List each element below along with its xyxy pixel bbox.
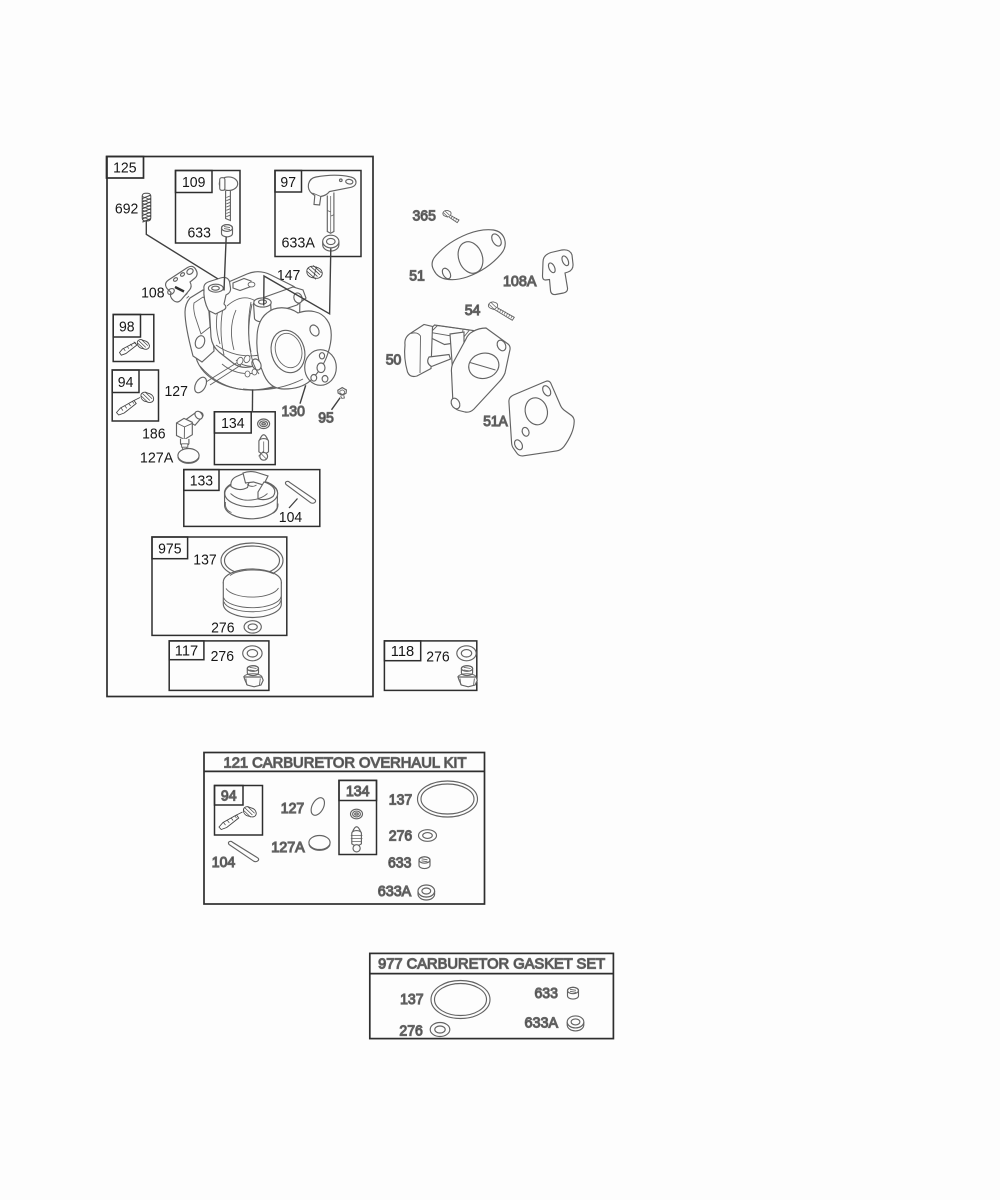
svg-text:276: 276	[426, 649, 449, 666]
svg-text:95: 95	[318, 409, 334, 426]
svg-text:633: 633	[388, 855, 411, 872]
svg-text:276: 276	[399, 1022, 422, 1039]
svg-text:977 CARBURETOR GASKET SET: 977 CARBURETOR GASKET SET	[378, 956, 605, 973]
svg-text:127: 127	[281, 800, 304, 817]
svg-text:94: 94	[221, 787, 237, 804]
svg-text:50: 50	[386, 351, 402, 368]
svg-text:118: 118	[391, 643, 414, 660]
svg-text:130: 130	[282, 403, 305, 420]
svg-text:109: 109	[182, 174, 205, 191]
svg-text:108A: 108A	[503, 273, 537, 290]
svg-text:276: 276	[211, 648, 234, 665]
svg-text:276: 276	[211, 619, 234, 636]
svg-text:54: 54	[465, 302, 481, 319]
svg-text:51: 51	[409, 268, 425, 285]
svg-text:137: 137	[193, 552, 216, 569]
svg-text:127A: 127A	[140, 450, 174, 467]
svg-text:127: 127	[165, 383, 188, 400]
svg-text:94: 94	[118, 374, 134, 391]
svg-text:98: 98	[119, 318, 135, 335]
svg-text:97: 97	[280, 174, 296, 191]
svg-text:633A: 633A	[525, 1015, 559, 1032]
svg-text:137: 137	[400, 991, 423, 1008]
svg-text:276: 276	[389, 828, 412, 845]
svg-text:127A: 127A	[271, 839, 305, 856]
svg-text:134: 134	[346, 783, 369, 800]
svg-text:104: 104	[212, 854, 235, 871]
svg-text:125: 125	[113, 160, 136, 177]
svg-text:104: 104	[279, 509, 302, 526]
svg-text:975: 975	[158, 540, 181, 557]
svg-text:186: 186	[142, 425, 165, 442]
svg-text:134: 134	[221, 415, 244, 432]
svg-text:121 CARBURETOR OVERHAUL KIT: 121 CARBURETOR OVERHAUL KIT	[224, 754, 467, 771]
svg-text:108: 108	[141, 284, 164, 301]
svg-text:137: 137	[389, 792, 412, 809]
svg-text:692: 692	[115, 200, 138, 217]
svg-text:633A: 633A	[378, 883, 412, 900]
svg-text:633A: 633A	[281, 235, 315, 252]
svg-text:117: 117	[175, 642, 198, 659]
svg-text:633: 633	[188, 224, 211, 241]
svg-text:51A: 51A	[483, 413, 508, 430]
svg-text:633: 633	[535, 985, 558, 1002]
svg-text:133: 133	[190, 472, 213, 489]
svg-text:365: 365	[413, 208, 436, 225]
